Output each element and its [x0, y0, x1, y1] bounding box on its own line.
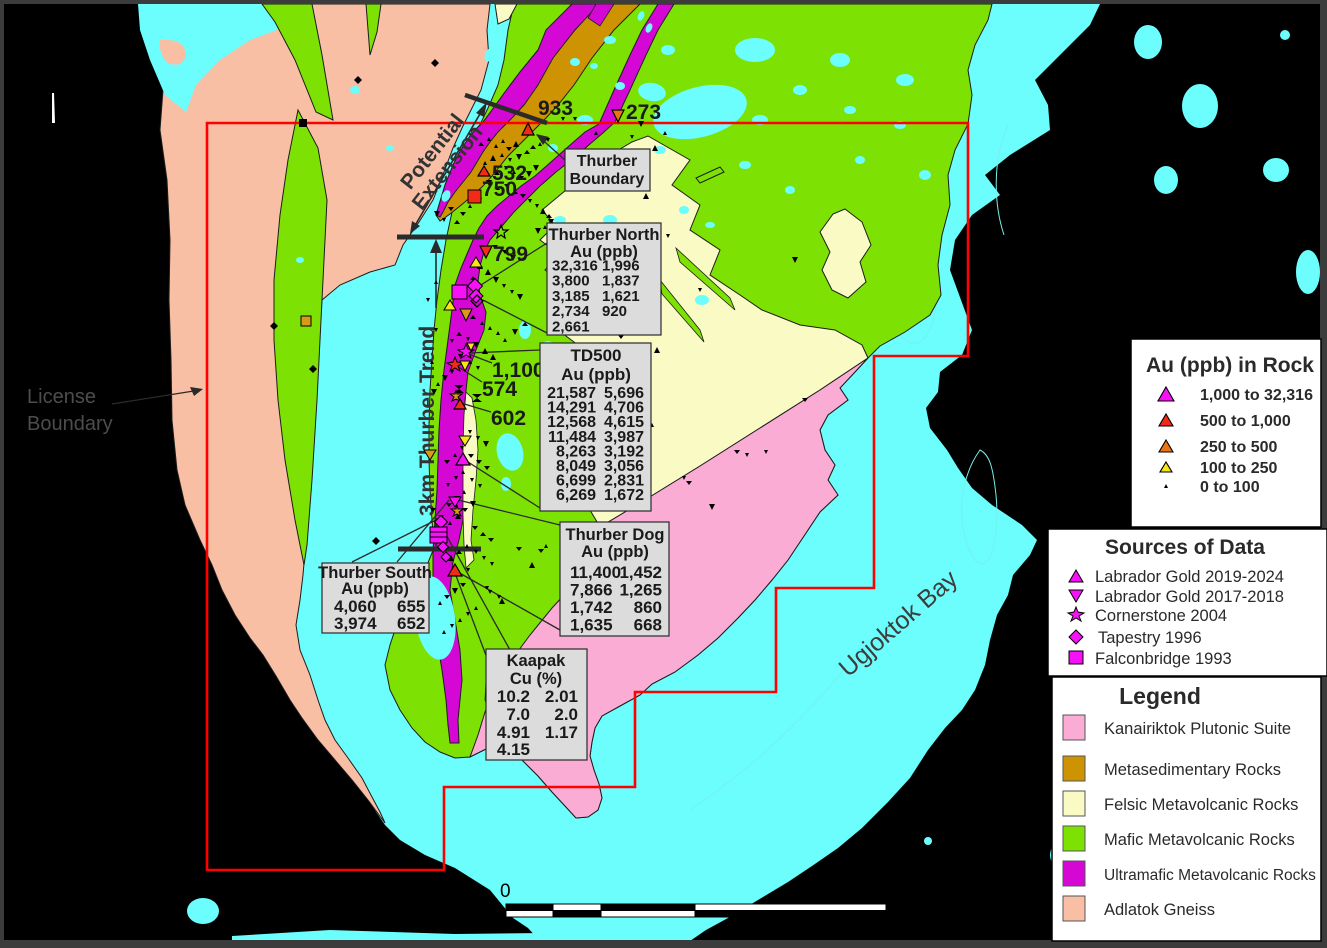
svg-text:500 to 1,000: 500 to 1,000 [1200, 413, 1291, 430]
svg-text:Thurber: Thurber [577, 153, 637, 170]
svg-text:Thurber Dog: Thurber Dog [566, 526, 665, 544]
svg-text:1,672: 1,672 [604, 487, 644, 504]
svg-text:Legend: Legend [1119, 683, 1201, 709]
svg-text:1,452: 1,452 [619, 563, 662, 582]
svg-text:Boundary: Boundary [570, 171, 645, 188]
svg-text:1,742: 1,742 [570, 598, 613, 617]
svg-text:TD500: TD500 [570, 346, 621, 365]
svg-text:Boundary: Boundary [27, 413, 113, 435]
svg-text:1,265: 1,265 [619, 581, 662, 600]
svg-text:0 to 100: 0 to 100 [1200, 479, 1260, 496]
svg-text:602: 602 [491, 407, 526, 430]
svg-text:6,269: 6,269 [556, 487, 596, 504]
svg-text:10.2: 10.2 [497, 687, 530, 706]
svg-text:860: 860 [634, 598, 662, 617]
svg-text:1,000 to 32,316: 1,000 to 32,316 [1200, 387, 1313, 404]
svg-text:574: 574 [482, 378, 517, 401]
svg-text:Kaapak: Kaapak [507, 652, 567, 670]
svg-text:Falconbridge 1993: Falconbridge 1993 [1095, 650, 1232, 668]
svg-text:Kanairiktok Plutonic Suite: Kanairiktok Plutonic Suite [1104, 720, 1291, 738]
svg-text:Thurber North: Thurber North [549, 226, 660, 244]
svg-text:750: 750 [482, 178, 517, 201]
svg-text:7,866: 7,866 [570, 581, 613, 600]
svg-text:Au (ppb) in Rock: Au (ppb) in Rock [1146, 354, 1314, 377]
svg-text:0: 0 [500, 881, 511, 902]
svg-text:Labrador Gold 2019-2024: Labrador Gold 2019-2024 [1095, 568, 1284, 586]
svg-text:2.0: 2.0 [554, 705, 578, 724]
svg-text:933: 933 [538, 97, 573, 120]
svg-text:668: 668 [634, 616, 662, 635]
svg-text:Metasedimentary Rocks: Metasedimentary Rocks [1104, 761, 1281, 779]
svg-text:920: 920 [602, 303, 627, 320]
svg-text:Cu (%): Cu (%) [510, 670, 562, 688]
svg-text:Au (ppb): Au (ppb) [581, 543, 649, 561]
svg-text:652: 652 [397, 614, 425, 633]
svg-text:Au (ppb): Au (ppb) [341, 580, 409, 598]
svg-text:3km Thurber Trend: 3km Thurber Trend [416, 326, 439, 516]
svg-text:License: License [27, 386, 96, 408]
svg-text:4.15: 4.15 [497, 740, 530, 759]
svg-text:Tapestry 1996: Tapestry 1996 [1098, 629, 1202, 647]
svg-text:Ultramafic Metavolcanic Rocks: Ultramafic Metavolcanic Rocks [1104, 867, 1316, 884]
svg-text:Felsic Metavolcanic Rocks: Felsic Metavolcanic Rocks [1104, 796, 1298, 814]
svg-text:11,400: 11,400 [570, 563, 621, 582]
svg-text:Mafic Metavolcanic Rocks: Mafic Metavolcanic Rocks [1104, 831, 1295, 849]
svg-text:273: 273 [626, 101, 661, 124]
svg-text:2,661: 2,661 [552, 318, 590, 335]
svg-text:7.0: 7.0 [506, 705, 530, 724]
svg-text:Cornerstone 2004: Cornerstone 2004 [1095, 607, 1227, 625]
svg-text:Sources of Data: Sources of Data [1105, 536, 1265, 559]
svg-text:1,635: 1,635 [570, 616, 613, 635]
svg-text:2.01: 2.01 [545, 687, 578, 706]
svg-text:Adlatok Gneiss: Adlatok Gneiss [1104, 901, 1215, 919]
svg-text:250 to 500: 250 to 500 [1200, 439, 1277, 456]
svg-text:1.17: 1.17 [545, 723, 578, 742]
svg-text:799: 799 [493, 243, 528, 266]
svg-text:Labrador Gold 2017-2018: Labrador Gold 2017-2018 [1095, 588, 1284, 606]
svg-text:3,974: 3,974 [334, 614, 377, 633]
svg-text:Au (ppb): Au (ppb) [561, 365, 631, 384]
svg-text:100 to 250: 100 to 250 [1200, 460, 1277, 477]
